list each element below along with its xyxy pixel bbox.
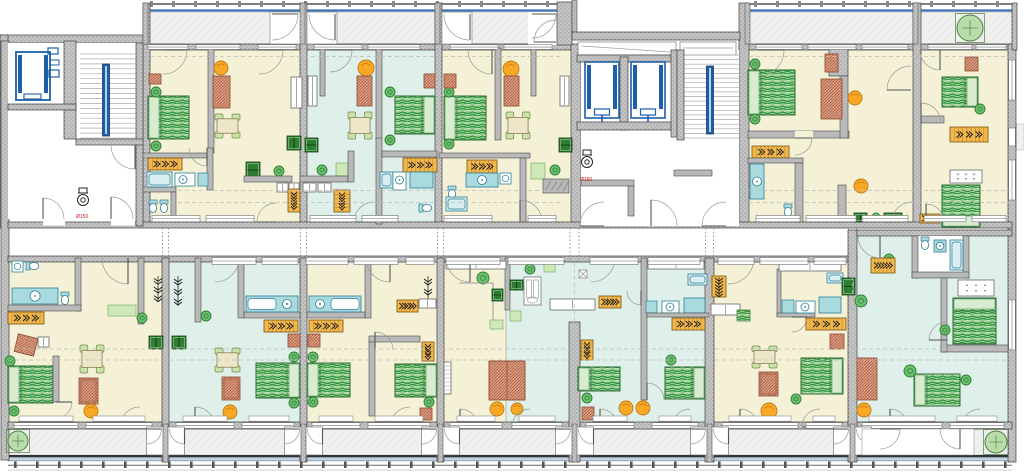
svg-text:Ø150: Ø150	[76, 214, 88, 220]
svg-text:Ø150: Ø150	[580, 177, 592, 183]
